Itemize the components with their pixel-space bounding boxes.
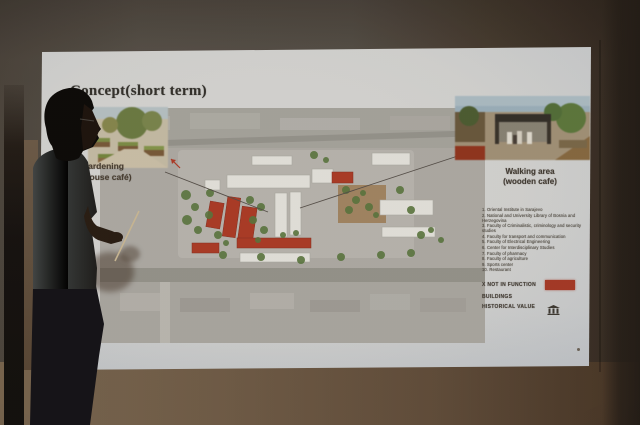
presenter-silhouette	[0, 0, 640, 425]
presentation-room-photo: Concept(short term)	[0, 0, 640, 425]
presenter-pants	[30, 286, 104, 425]
presenter-hand	[109, 232, 123, 242]
presenter-face	[81, 104, 100, 150]
wall-right-shadow	[602, 0, 640, 425]
